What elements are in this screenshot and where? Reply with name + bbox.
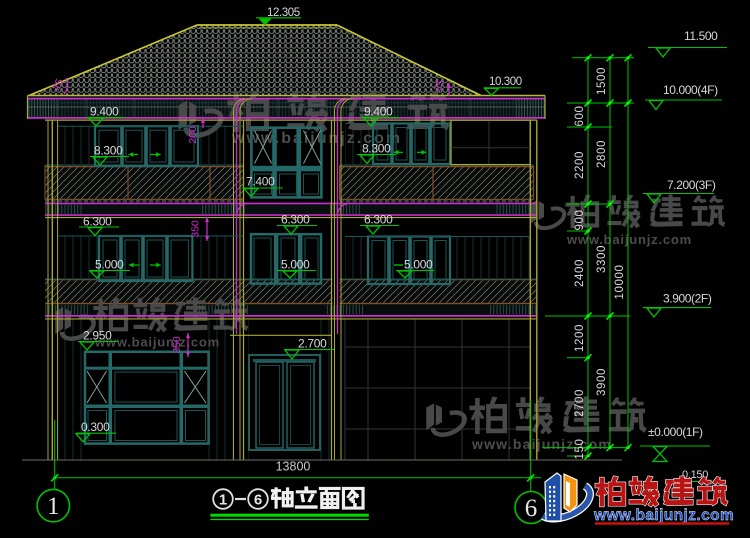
- svg-text:2400: 2400: [574, 259, 586, 287]
- svg-text:1500: 1500: [596, 67, 608, 95]
- svg-text:10.000(4F): 10.000(4F): [663, 83, 718, 97]
- svg-text:1200: 1200: [574, 324, 586, 352]
- svg-text:150: 150: [574, 439, 586, 460]
- svg-text:5.000: 5.000: [95, 258, 124, 272]
- svg-text:1: 1: [47, 493, 60, 520]
- svg-text:2700: 2700: [574, 389, 586, 417]
- svg-text:9.400: 9.400: [90, 105, 119, 119]
- svg-text:5.000: 5.000: [404, 258, 433, 272]
- svg-text:8.300: 8.300: [362, 142, 391, 156]
- svg-text:5.000: 5.000: [281, 258, 310, 272]
- svg-text:600: 600: [574, 106, 586, 127]
- svg-text:10.300: 10.300: [489, 76, 522, 88]
- svg-text:6.300: 6.300: [281, 213, 310, 227]
- svg-text:0.300: 0.300: [81, 420, 110, 434]
- svg-text:3300: 3300: [596, 245, 608, 273]
- svg-text:2200: 2200: [574, 151, 586, 179]
- svg-text:6: 6: [254, 492, 262, 509]
- svg-text:2800: 2800: [596, 140, 608, 168]
- svg-text:350: 350: [171, 336, 183, 354]
- svg-text:8.300: 8.300: [94, 144, 123, 158]
- svg-text:6.300: 6.300: [83, 215, 112, 229]
- svg-text:9.400: 9.400: [364, 105, 393, 119]
- svg-text:7.200(3F): 7.200(3F): [667, 178, 716, 192]
- svg-text:3.900(2F): 3.900(2F): [663, 292, 712, 306]
- svg-text:6: 6: [525, 495, 538, 522]
- svg-text:13800: 13800: [276, 460, 311, 474]
- svg-text:±0.000(1F): ±0.000(1F): [648, 425, 703, 439]
- svg-text:3900: 3900: [596, 368, 608, 396]
- svg-text:www.baijunjz.com: www.baijunjz.com: [593, 507, 734, 524]
- svg-text:2.700: 2.700: [298, 337, 327, 351]
- svg-text:7.400: 7.400: [246, 175, 275, 189]
- svg-text:900: 900: [574, 210, 586, 231]
- svg-text:2.950: 2.950: [83, 329, 112, 343]
- svg-text:11.500: 11.500: [684, 29, 718, 43]
- svg-text:1: 1: [219, 492, 227, 509]
- svg-text:10000: 10000: [614, 265, 626, 300]
- svg-text:200: 200: [187, 126, 199, 144]
- svg-text:6.300: 6.300: [364, 213, 393, 227]
- svg-text:350: 350: [190, 220, 202, 238]
